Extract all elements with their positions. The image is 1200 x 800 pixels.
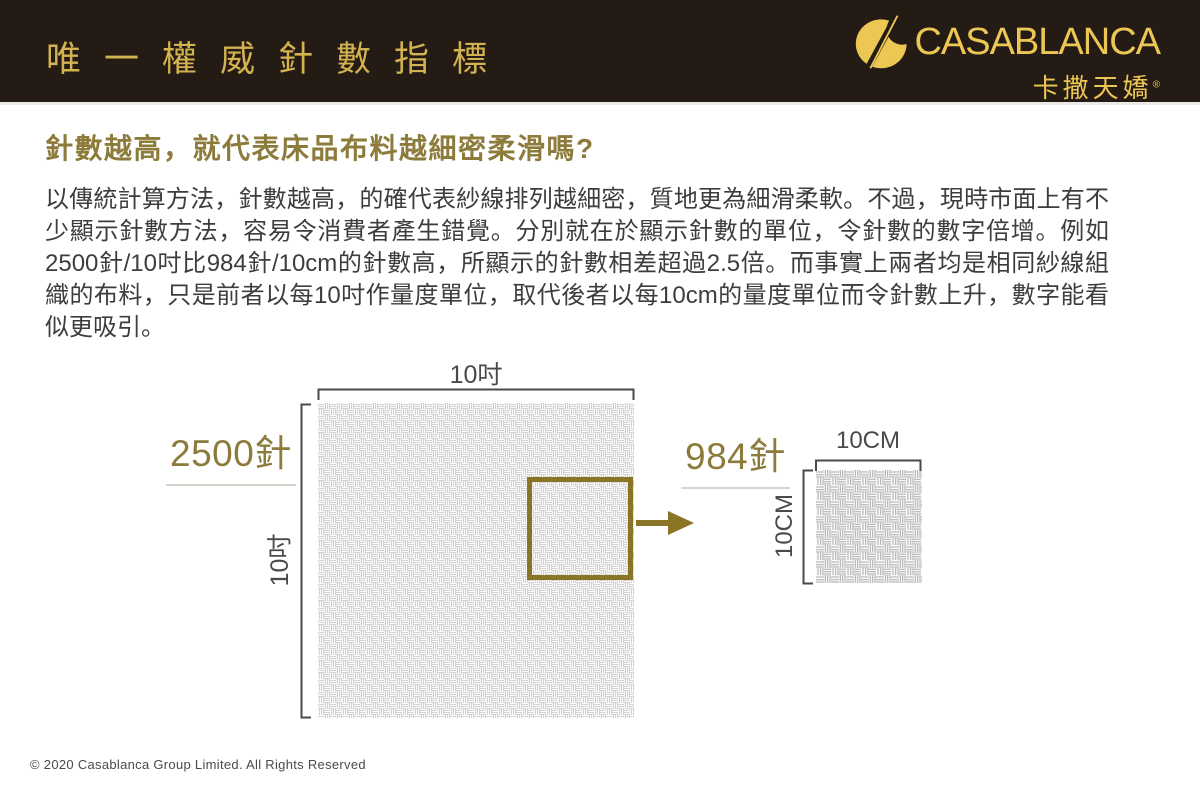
registered-trademark-mark: ® <box>1153 79 1160 90</box>
slide: 唯一權威針數指標 CASABLANCA 卡撒天嬌® 針數越高，就代表床品布料越細… <box>0 0 1200 800</box>
brand-name-chinese-text: 卡撒天嬌 <box>1033 73 1153 103</box>
section-heading: 針數越高，就代表床品布料越細密柔滑嗎? <box>45 127 595 167</box>
brand-logo: CASABLANCA 卡撒天嬌® <box>854 10 1160 105</box>
large-swatch-height-label: 10吋 <box>260 500 286 620</box>
large-swatch-left-dimension-bracket <box>302 405 312 718</box>
small-fabric-weave-texture <box>816 470 922 583</box>
body-paragraph: 以傳統計算方法，針數越高，的確代表紗線排列越細密，質地更為細滑柔軟。不過，現時市… <box>45 184 1109 344</box>
small-swatch-width-label: 10CM <box>814 427 922 455</box>
casablanca-needle-c-icon <box>854 10 912 74</box>
header-bar: 唯一權威針數指標 CASABLANCA 卡撒天嬌® <box>0 0 1200 105</box>
footer-copyright: © 2020 Casablanca Group Limited. All Rig… <box>30 757 366 772</box>
small-swatch-height-label: 10CM <box>771 466 797 586</box>
brand-logo-row: CASABLANCA <box>854 10 1160 74</box>
page-title: 唯一權威針數指標 <box>46 31 510 82</box>
small-swatch-left-dimension-bracket <box>804 471 814 584</box>
large-swatch-width-label: 10吋 <box>418 355 534 391</box>
zoom-arrow-head-icon <box>668 511 694 535</box>
large-fabric-weave-texture <box>318 403 634 718</box>
large-swatch-count-label: 2500針 <box>166 423 296 486</box>
large-fabric-swatch <box>318 403 634 718</box>
large-swatch-top-dimension-bracket <box>319 390 634 401</box>
small-fabric-swatch <box>816 470 922 583</box>
brand-name: CASABLANCA <box>914 21 1160 64</box>
